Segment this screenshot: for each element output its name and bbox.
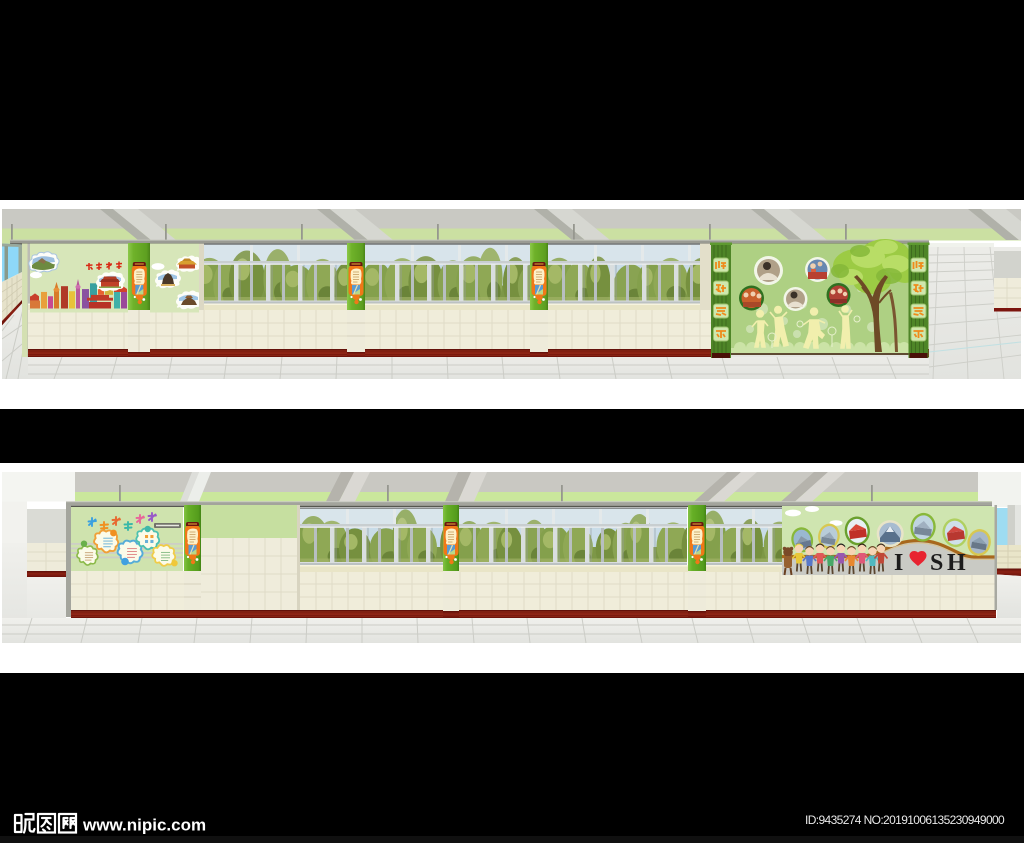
svg-text:I: I	[894, 550, 903, 576]
svg-text:H: H	[947, 550, 966, 576]
svg-text:www.nipic.com: www.nipic.com	[82, 816, 206, 835]
svg-text:S: S	[930, 550, 943, 576]
